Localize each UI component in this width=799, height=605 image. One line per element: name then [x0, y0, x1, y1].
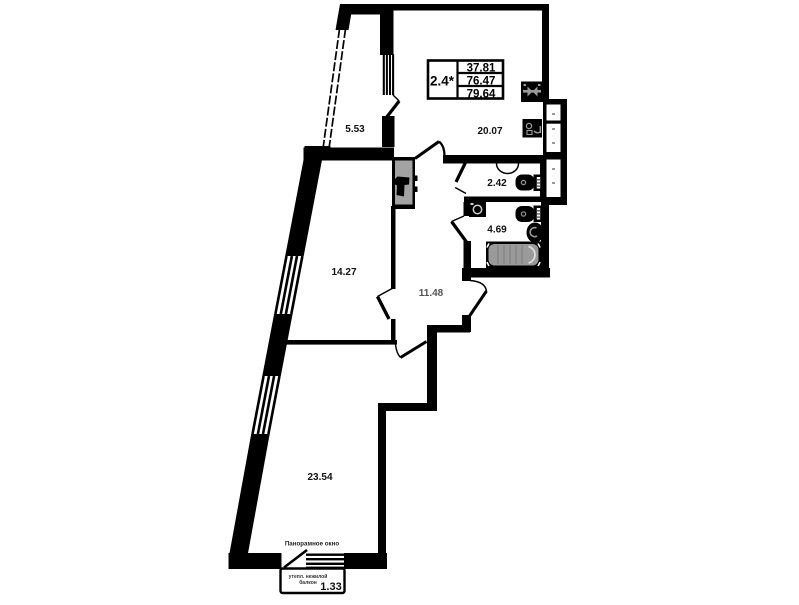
svg-text:Панорамное окно: Панорамное окно — [285, 541, 339, 548]
svg-text:20.07: 20.07 — [477, 126, 502, 137]
svg-text:37.81: 37.81 — [467, 63, 496, 75]
svg-text:14.27: 14.27 — [331, 267, 356, 278]
svg-text:балкон: балкон — [299, 579, 317, 586]
svg-text:23.54: 23.54 — [307, 472, 332, 483]
svg-text:2.42: 2.42 — [487, 178, 507, 189]
svg-text:5.53: 5.53 — [345, 124, 365, 135]
svg-text:11.48: 11.48 — [419, 288, 444, 299]
svg-text:4.69: 4.69 — [487, 225, 507, 236]
svg-text:2.4*: 2.4* — [430, 74, 455, 89]
svg-text:79.64: 79.64 — [467, 89, 496, 101]
svg-text:1.33: 1.33 — [320, 581, 341, 593]
svg-text:76.47: 76.47 — [467, 76, 496, 88]
svg-text:утепл. нежилой: утепл. нежилой — [289, 573, 328, 580]
